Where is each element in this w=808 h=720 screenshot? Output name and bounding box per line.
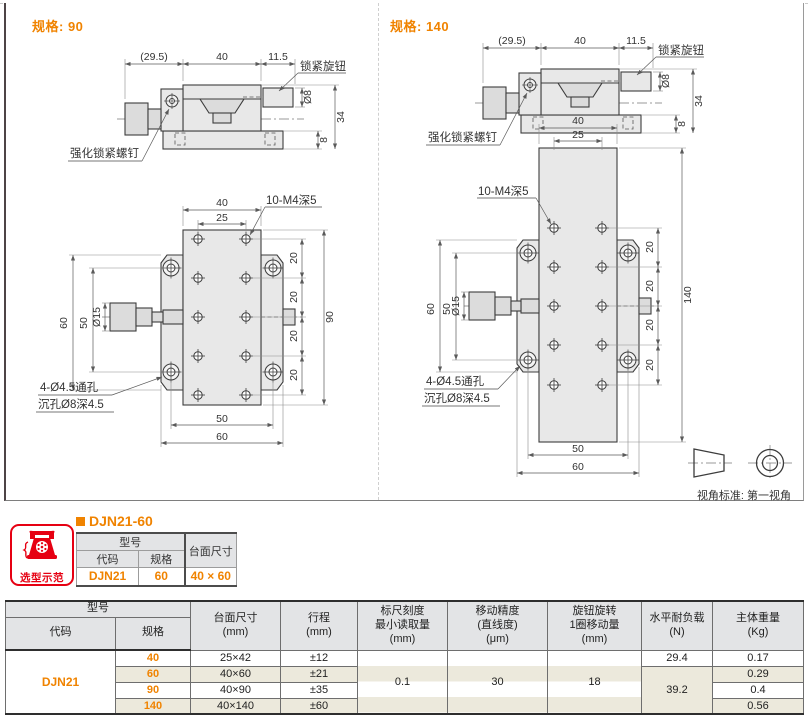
dim-lock-offset: 11.5 <box>626 35 646 47</box>
cell-stroke: ±60 <box>281 698 358 714</box>
selection-example-badge: 选型示范 <box>10 524 74 586</box>
projection-standard: 视角标准: 第一视角 <box>686 445 802 499</box>
hdr-weight: 主体重量 (Kg) <box>713 601 804 650</box>
dim-hole-pitch: 20 <box>288 291 300 303</box>
side-view-140: (29.5) 40 11.5 锁紧旋钮 Ø8 8 34 强化锁紧螺钉 <box>426 35 705 145</box>
hdr-per-turn: 旋钮旋转 1圈移动量 (mm) <box>548 601 642 650</box>
cell-stroke: ±35 <box>281 682 358 698</box>
phone-icon <box>20 529 64 565</box>
cell-weight: 0.56 <box>713 698 804 714</box>
drawing-section: 规格: 90 规格: 140 <box>4 3 804 501</box>
dim-table-width: 40 <box>216 51 228 63</box>
cell-size: 40×90 <box>191 682 281 698</box>
sel-size-header: 台面尺寸 <box>185 533 237 568</box>
cell-spec: 90 <box>116 682 191 698</box>
dim-lock-offset: 11.5 <box>268 51 288 63</box>
dim-overall-height: 34 <box>693 95 705 107</box>
hdr-accuracy: 移动精度 (直线度) (μm) <box>448 601 548 650</box>
tap-note-label: 10-M4深5 <box>478 184 529 198</box>
hdr-scale: 标尺刻度 最小读取量 (mm) <box>358 601 448 650</box>
dim-knob-dia: Ø15 <box>450 296 462 316</box>
dim-plan-width: 40 <box>572 115 584 127</box>
plan-view-90: 40 25 10-M4深5 20 20 20 20 90 <box>36 193 336 447</box>
sel-model-header: 型号 <box>77 533 185 551</box>
cell-scale: 0.1 <box>358 650 448 714</box>
cell-spec: 40 <box>116 650 191 666</box>
cbore-label: 沉孔Ø8深4.5 <box>424 391 490 405</box>
badge-label: 选型示范 <box>12 570 72 585</box>
dim-hole-pitch: 20 <box>644 359 656 371</box>
sel-size-value: 40 × 60 <box>185 568 237 586</box>
lock-knob-label: 锁紧旋钮 <box>658 43 704 57</box>
thru-hole-label: 4-Ø4.5通孔 <box>426 375 485 388</box>
first-angle-projection-icon <box>688 445 800 481</box>
dim-hole-pitch: 20 <box>644 280 656 292</box>
cell-stroke: ±21 <box>281 666 358 682</box>
spec-90-drawing: (29.5) 40 11.5 锁紧旋钮 Ø8 8 34 强化锁紧螺钉 <box>12 33 364 465</box>
spec-140-drawing: (29.5) 40 11.5 锁紧旋钮 Ø8 8 34 强化锁紧螺钉 <box>408 19 718 489</box>
dim-knob-dia: Ø15 <box>91 307 103 327</box>
selection-part-number: DJN21-60 <box>89 513 153 529</box>
plan-view-140: 40 25 10-M4深5 20 20 20 20 140 <box>422 115 694 477</box>
dim-hole-span: 50 <box>78 317 90 329</box>
selection-title: DJN21-60 <box>76 513 153 529</box>
selection-example-table: 型号 台面尺寸 代码 规格 DJN21 60 40 × 60 <box>76 532 237 587</box>
dim-rail-span: 60 <box>425 303 437 315</box>
dim-hole-pitch: 20 <box>288 330 300 342</box>
cell-load: 39.2 <box>642 666 713 714</box>
cell-size: 25×42 <box>191 650 281 666</box>
lock-knob-label: 锁紧旋钮 <box>300 59 346 73</box>
dim-knob-width: (29.5) <box>498 35 525 47</box>
dim-hole-cols-span: 25 <box>572 129 584 141</box>
dim-hole-pitch: 20 <box>288 369 300 381</box>
dim-overall-height: 34 <box>335 111 347 123</box>
dim-base-hole-span: 50 <box>216 413 228 425</box>
dim-base-width: 60 <box>572 461 584 473</box>
sel-code-header: 代码 <box>77 551 139 568</box>
dim-hole-pitch: 20 <box>288 252 300 264</box>
dim-hole-cols-span: 25 <box>216 212 228 224</box>
cell-code: DJN21 <box>6 650 116 714</box>
thru-hole-label: 4-Ø4.5通孔 <box>40 381 99 394</box>
panel-divider <box>378 3 379 500</box>
hdr-stroke: 行程 (mm) <box>281 601 358 650</box>
reinforced-screw-label: 强化锁紧螺钉 <box>428 130 497 144</box>
cell-weight: 0.4 <box>713 682 804 698</box>
dim-lock-dia: Ø8 <box>302 90 314 104</box>
cell-spec: 60 <box>116 666 191 682</box>
hdr-model: 型号 <box>6 601 191 617</box>
dim-hole-pitch: 20 <box>644 319 656 331</box>
dim-base-height: 8 <box>318 137 330 143</box>
cell-weight: 0.29 <box>713 666 804 682</box>
sel-code-value: DJN21 <box>77 568 139 586</box>
cell-weight: 0.17 <box>713 650 804 666</box>
cell-load: 29.4 <box>642 650 713 666</box>
dim-base-height: 8 <box>676 121 688 127</box>
sel-spec-value: 60 <box>139 568 185 586</box>
dim-plan-length-90: 90 <box>324 311 336 323</box>
orange-bullet-icon <box>76 517 85 526</box>
reinforced-screw-label: 强化锁紧螺钉 <box>70 146 139 160</box>
dim-rail-span: 60 <box>58 317 70 329</box>
dim-base-width: 60 <box>216 431 228 443</box>
dim-plan-length-140: 140 <box>682 286 694 304</box>
hdr-code: 代码 <box>6 617 116 650</box>
sel-spec-header: 规格 <box>139 551 185 568</box>
side-view-90: (29.5) 40 11.5 锁紧旋钮 Ø8 8 34 强化锁紧螺钉 <box>68 51 347 161</box>
hdr-spec: 规格 <box>116 617 191 650</box>
cell-spec: 140 <box>116 698 191 714</box>
dim-knob-width: (29.5) <box>140 51 167 63</box>
projection-caption: 视角标准: 第一视角 <box>686 487 802 503</box>
dim-base-hole-span: 50 <box>572 443 584 455</box>
spec-table: 型号 台面尺寸 (mm) 行程 (mm) 标尺刻度 最小读取量 (mm) 移动精… <box>5 600 804 715</box>
dim-lock-dia: Ø8 <box>660 74 672 88</box>
cell-size: 40×60 <box>191 666 281 682</box>
tap-note-label: 10-M4深5 <box>266 193 317 207</box>
dim-plan-width: 40 <box>216 197 228 209</box>
hdr-load: 水平耐负载 (N) <box>642 601 713 650</box>
cell-per-turn: 18 <box>548 650 642 714</box>
cell-accuracy: 30 <box>448 650 548 714</box>
dim-table-width: 40 <box>574 35 586 47</box>
cell-size: 40×140 <box>191 698 281 714</box>
cell-stroke: ±12 <box>281 650 358 666</box>
spec-row-40: DJN21 40 25×42 ±12 0.1 30 18 29.4 0.17 <box>6 650 804 666</box>
dim-hole-pitch: 20 <box>644 241 656 253</box>
hdr-table-size: 台面尺寸 (mm) <box>191 601 281 650</box>
cbore-label: 沉孔Ø8深4.5 <box>38 397 104 411</box>
